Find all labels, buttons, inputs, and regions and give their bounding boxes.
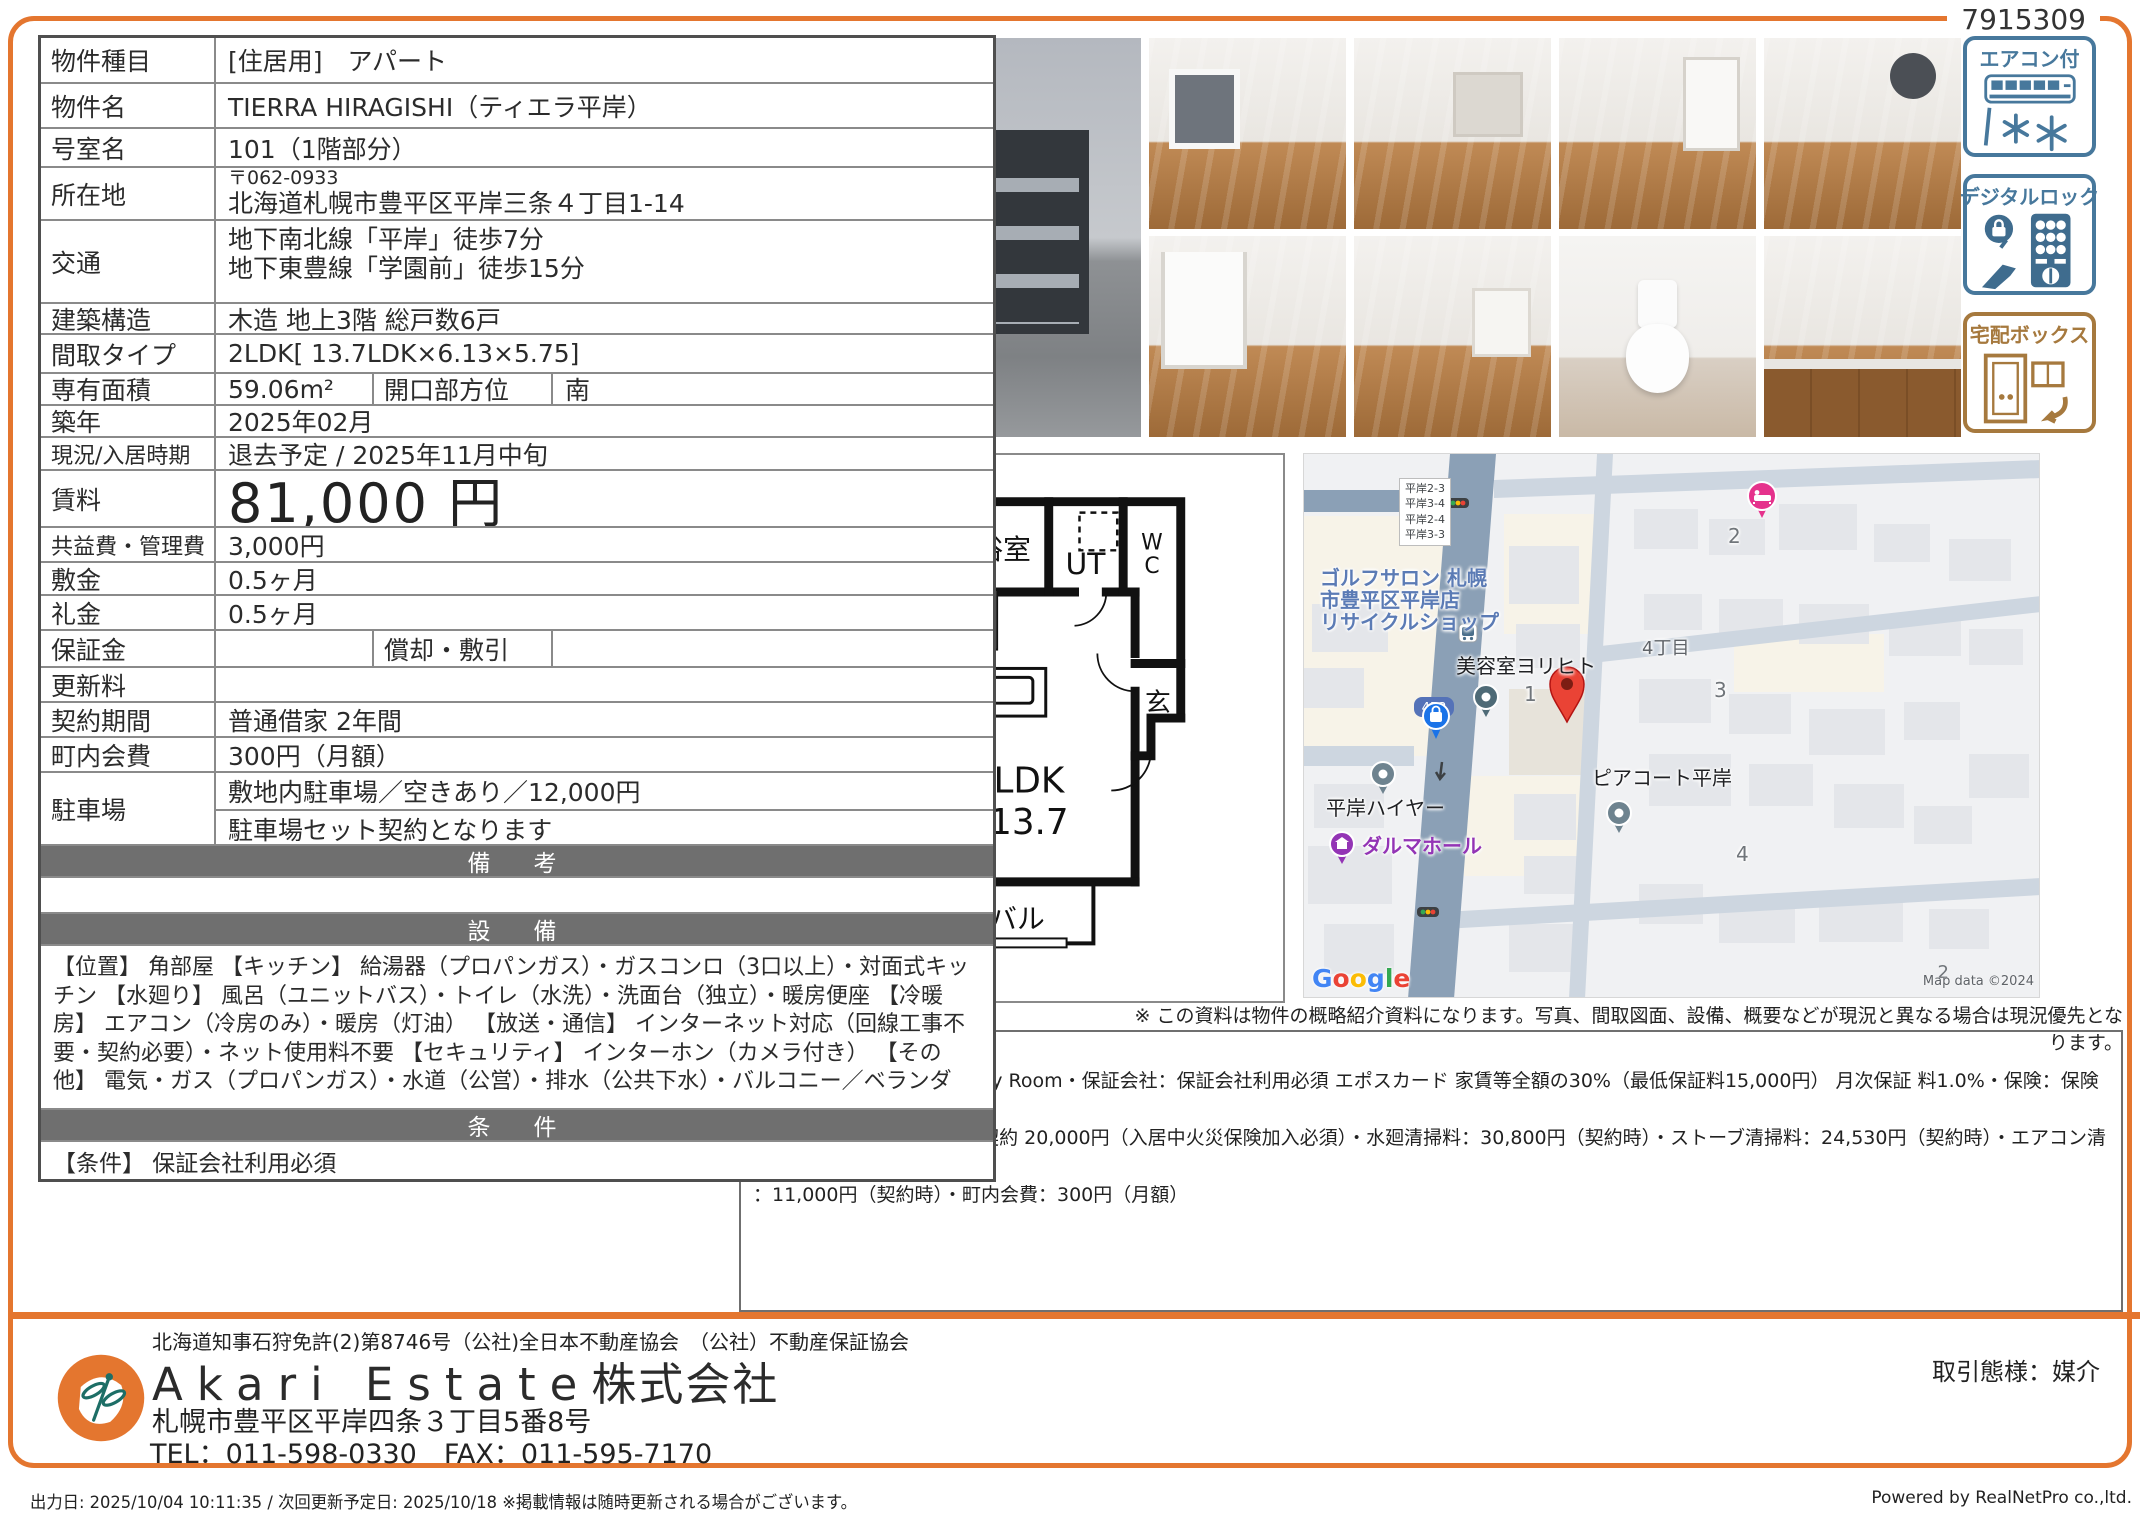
traffic-light-icon: [1417, 907, 1439, 917]
block-label: 平岸2-4: [1405, 512, 1445, 527]
row-value: 普通借家 2年間: [216, 703, 993, 736]
company-contact: TEL：011-598-0330 FAX：011-595-7170: [150, 1432, 712, 1471]
parcel-icon: [2032, 363, 2062, 386]
row-sublabel: 開口部方位: [374, 374, 553, 404]
row-label: 敷金: [41, 563, 216, 594]
map-number: 3: [1714, 678, 1727, 702]
table-row: 所在地 〒062-0933北海道札幌市豊平区平岸三条４丁目1-14: [41, 168, 993, 221]
block-number-box: 平岸2-3 平岸3-4 平岸2-4 平岸3-3: [1399, 478, 1451, 546]
table-row: 交通 地下南北線「平岸」徒歩7分地下東豊線「学園前」徒歩15分: [41, 221, 993, 304]
row-label: 所在地: [41, 168, 216, 219]
dragonfly-logo-icon: [55, 1352, 147, 1444]
conditions-header: 条 件: [41, 1110, 993, 1142]
table-row: 保証金 償却・敷引: [41, 631, 993, 668]
parking-line: 駐車場セット契約となります: [216, 811, 993, 847]
room-label-wc: C: [1144, 554, 1159, 579]
interior-photo-grid: [1149, 38, 1961, 437]
interior-photo-7: [1559, 236, 1756, 437]
remarks-header: 備 考: [41, 846, 993, 878]
remarks-empty-row: [41, 878, 993, 914]
table-row: 契約期間普通借家 2年間: [41, 703, 993, 738]
equipment-header: 設 備: [41, 914, 993, 946]
room-label-entrance: 玄: [1145, 688, 1171, 718]
parcel-locker-icon: [1975, 348, 2085, 429]
map-number: 1: [1524, 682, 1537, 706]
table-row: 敷金0.5ヶ月: [41, 563, 993, 596]
district-label: 4丁目: [1642, 634, 1689, 660]
postal-code: 〒062-0933: [228, 168, 338, 190]
room-label-ldk: LDK: [993, 761, 1065, 802]
row-label: 号室名: [41, 129, 216, 166]
table-row: 物件種目[住居用] アパート: [41, 38, 993, 84]
row-value: 300円（月額）: [216, 738, 993, 771]
access-line: 地下南北線「平岸」徒歩7分: [228, 226, 544, 255]
row-value: 敷地内駐車場／空きあり／12,000円 駐車場セット契約となります: [216, 773, 993, 844]
row-value: 退去予定 / 2025年11月中旬: [216, 438, 993, 469]
row-label: 共益費・管理費: [41, 528, 216, 561]
row-label: 物件名: [41, 84, 216, 127]
delivery-box-badge-label: 宅配ボックス: [1970, 319, 2089, 348]
table-row: 現況/入居時期退去予定 / 2025年11月中旬: [41, 438, 993, 471]
table-row: 共益費・管理費3,000円: [41, 528, 993, 563]
table-row: 物件名TIERRA HIRAGISHI（ティエラ平岸）: [41, 84, 993, 129]
rent-value: 81,000 円: [216, 471, 993, 526]
poi-label-piacote: ピアコート平岸: [1592, 762, 1732, 791]
row-label: 礼金: [41, 596, 216, 629]
aircon-badge-label: エアコン付: [1980, 43, 2080, 72]
map-number: 2: [1728, 524, 1741, 548]
pointing-hand-icon: [1981, 265, 2015, 289]
interior-photo-6: [1354, 236, 1551, 437]
row-subvalue: 南: [553, 374, 993, 404]
row-label: 建築構造: [41, 304, 216, 333]
row-label: 契約期間: [41, 703, 216, 736]
table-row: 更新料: [41, 668, 993, 703]
spec-table: 物件種目[住居用] アパート 物件名TIERRA HIRAGISHI（ティエラ平…: [38, 35, 996, 1182]
row-subvalue: [553, 631, 993, 666]
row-sublabel: 償却・敷引: [374, 631, 553, 666]
row-value: TIERRA HIRAGISHI（ティエラ平岸）: [216, 84, 993, 127]
poi-label-salon: 美容室ヨリヒト: [1456, 650, 1596, 679]
location-map: 453 平岸2-3 平岸3-4 平岸2-4 平岸3-3 ゴルフサロン 札幌 市豊…: [1303, 453, 2040, 998]
poi-label-recycle: リサイクルショップ: [1320, 611, 1499, 633]
equipment-text: 【位置】 角部屋 【キッチン】 給湯器（プロパンガス）・ガスコンロ（3口以上）・…: [41, 946, 993, 1108]
aircon-badge: エアコン付: [1963, 36, 2096, 157]
notes-line: ：11,000円（契約時）・町内会費：300円（月額）: [753, 1181, 2109, 1210]
row-value: [216, 631, 374, 666]
row-value: 木造 地上3階 総戸数6戸: [216, 304, 993, 333]
equipment-row: 【位置】 角部屋 【キッチン】 給湯器（プロパンガス）・ガスコンロ（3口以上）・…: [41, 946, 993, 1110]
row-label: 町内会費: [41, 738, 216, 771]
row-value: 2025年02月: [216, 406, 993, 436]
row-label: 駐車場: [41, 773, 216, 844]
block-label: 平岸2-3: [1405, 481, 1445, 496]
interior-photo-4: [1764, 38, 1961, 229]
parking-line: 敷地内駐車場／空きあり／12,000円: [216, 773, 993, 811]
row-value: 0.5ヶ月: [216, 596, 993, 629]
conditions-text: 【条件】 保証会社利用必須: [41, 1142, 993, 1179]
powered-by: Powered by RealNetPro co.,ltd.: [1871, 1488, 2132, 1508]
delivery-box-badge: 宅配ボックス: [1963, 312, 2096, 433]
snowflake-icon: [2004, 115, 2027, 141]
row-label: 現況/入居時期: [41, 438, 216, 469]
table-row: 町内会費300円（月額）: [41, 738, 993, 773]
row-value: 0.5ヶ月: [216, 563, 993, 594]
table-row: 号室名101（1階部分）: [41, 129, 993, 168]
interior-photo-8: [1764, 236, 1961, 437]
interior-photo-2: [1354, 38, 1551, 229]
row-label: 築年: [41, 406, 216, 436]
row-label: 間取タイプ: [41, 335, 216, 372]
access-line: 地下東豊線「学園前」徒歩15分: [228, 255, 585, 284]
row-value: [住居用] アパート: [216, 38, 993, 82]
row-label: 専有面積: [41, 374, 216, 404]
table-row: 築年2025年02月: [41, 406, 993, 438]
conditions-row: 【条件】 保証会社利用必須: [41, 1142, 993, 1179]
poi-label-taxi: 平岸ハイヤー: [1326, 792, 1445, 821]
table-row: 駐車場 敷地内駐車場／空きあり／12,000円 駐車場セット契約となります: [41, 773, 993, 846]
block-label: 平岸3-4: [1405, 496, 1445, 511]
row-value: 59.06m²: [216, 374, 374, 404]
keypad-lock-icon: [1975, 210, 2085, 291]
interior-photo-1: [1149, 38, 1346, 229]
block-label: 平岸3-3: [1405, 527, 1445, 542]
table-row: 礼金0.5ヶ月: [41, 596, 993, 631]
google-logo: Google: [1312, 964, 1410, 993]
row-label: 賃料: [41, 471, 216, 526]
row-label: 物件種目: [41, 38, 216, 82]
property-sheet: 7915309 物件種目[住居用] アパート 物件名TIERRA HIRAGIS…: [0, 0, 2150, 1518]
room-label-wc: W: [1141, 530, 1163, 555]
return-arrow-icon: [2047, 397, 2065, 421]
footer-divider: [10, 1312, 2140, 1319]
row-value: 2LDK[ 13.7LDK×6.13×5.75]: [216, 335, 993, 372]
table-row: 建築構造木造 地上3階 総戸数6戸: [41, 304, 993, 335]
row-value: 3,000円: [216, 528, 993, 561]
row-label: 保証金: [41, 631, 216, 666]
reference-number: 7915309: [1947, 3, 2100, 36]
row-value: 〒062-0933北海道札幌市豊平区平岸三条４丁目1-14: [216, 168, 993, 219]
room-label-ldk-size: 13.7: [989, 802, 1069, 843]
room-label-ut: UT: [1065, 547, 1106, 582]
row-value: 101（1階部分）: [216, 129, 993, 166]
table-row: 間取タイプ2LDK[ 13.7LDK×6.13×5.75]: [41, 335, 993, 374]
digital-lock-badge: デジタルロック: [1963, 174, 2096, 295]
transaction-type: 取引態様：媒介: [1932, 1352, 2100, 1387]
washer-space-shape: [1080, 513, 1118, 551]
interior-photo-5: [1149, 236, 1346, 437]
digital-lock-badge-label: デジタルロック: [1960, 181, 2100, 210]
row-value: 地下南北線「平岸」徒歩7分地下東豊線「学園前」徒歩15分: [216, 221, 993, 302]
row-label: 更新料: [41, 668, 216, 701]
output-info: 出力日: 2025/10/04 10:11:35 / 次回更新予定日: 2025…: [30, 1488, 857, 1513]
interior-photo-3: [1559, 38, 1756, 229]
poi-label-golf: ゴルフサロン 札幌 市豊平区平岸店 リサイクルショップ: [1320, 567, 1499, 633]
aircon-icon: [1975, 72, 2085, 153]
row-value: [216, 668, 993, 701]
row-label: 交通: [41, 221, 216, 302]
table-row: 賃料81,000 円: [41, 471, 993, 528]
poi-label-daruma: ダルマホール: [1362, 830, 1482, 859]
map-number: 4: [1736, 842, 1749, 866]
address-line: 北海道札幌市豊平区平岸三条４丁目1-14: [228, 190, 685, 219]
snowflake-icon: [2038, 117, 2064, 149]
room-label-balcony: バル: [989, 903, 1045, 936]
table-row: 専有面積 59.06m² 開口部方位 南: [41, 374, 993, 406]
map-copyright: Map data ©2024: [1923, 974, 2034, 989]
